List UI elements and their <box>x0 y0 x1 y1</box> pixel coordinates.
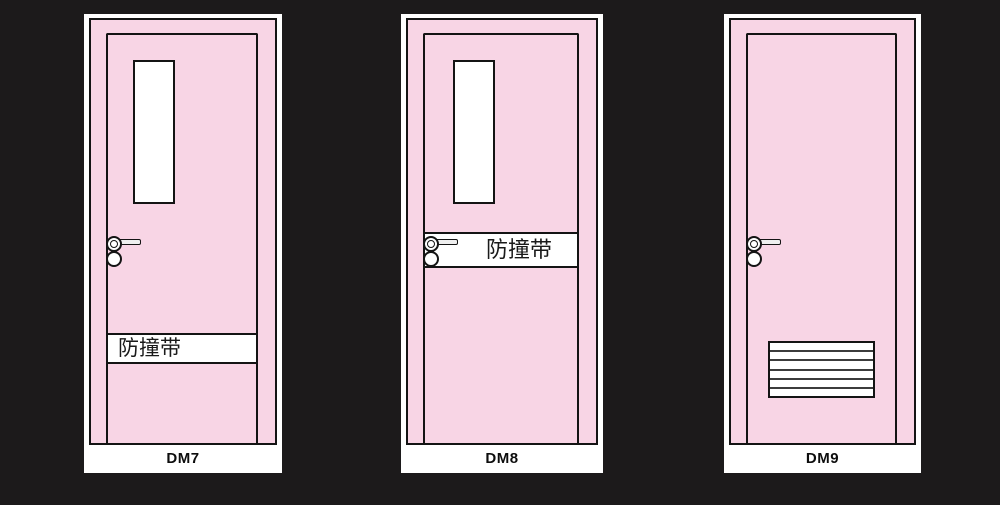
door-panel-inset <box>106 33 258 443</box>
handle-rosette-icon <box>423 236 439 252</box>
lock-knob-icon <box>746 251 762 267</box>
model-label: DM8 <box>401 445 603 473</box>
louver-slat <box>770 378 873 387</box>
anti-collision-band: 防撞带 <box>423 232 579 268</box>
door-leaf: 防撞带 <box>406 18 598 445</box>
band-label: 防撞带 <box>118 336 181 360</box>
lock-knob-icon <box>106 251 122 267</box>
door-card-dm9: DM9 <box>724 14 921 473</box>
model-label: DM7 <box>84 445 282 473</box>
vision-panel-window <box>453 60 495 204</box>
door-leaf <box>729 18 916 445</box>
louver-vent <box>768 341 875 398</box>
louver-slat <box>770 350 873 359</box>
vision-panel-window <box>133 60 175 204</box>
louver-slat <box>770 387 873 396</box>
louver-slat <box>770 369 873 378</box>
model-label: DM9 <box>724 445 921 473</box>
louver-slat <box>770 343 873 350</box>
band-label: 防撞带 <box>486 237 552 262</box>
catalog-canvas: { "scene": { "background_color": "#1c1a1… <box>0 0 1000 505</box>
lock-knob-icon <box>423 251 439 267</box>
anti-collision-band: 防撞带 <box>106 333 258 364</box>
door-leaf: 防撞带 <box>89 18 277 445</box>
handle-rosette-icon <box>746 236 762 252</box>
door-card-dm7: 防撞带 DM7 <box>84 14 282 473</box>
louver-slat <box>770 359 873 368</box>
door-card-dm8: 防撞带 DM8 <box>401 14 603 473</box>
handle-rosette-icon <box>106 236 122 252</box>
